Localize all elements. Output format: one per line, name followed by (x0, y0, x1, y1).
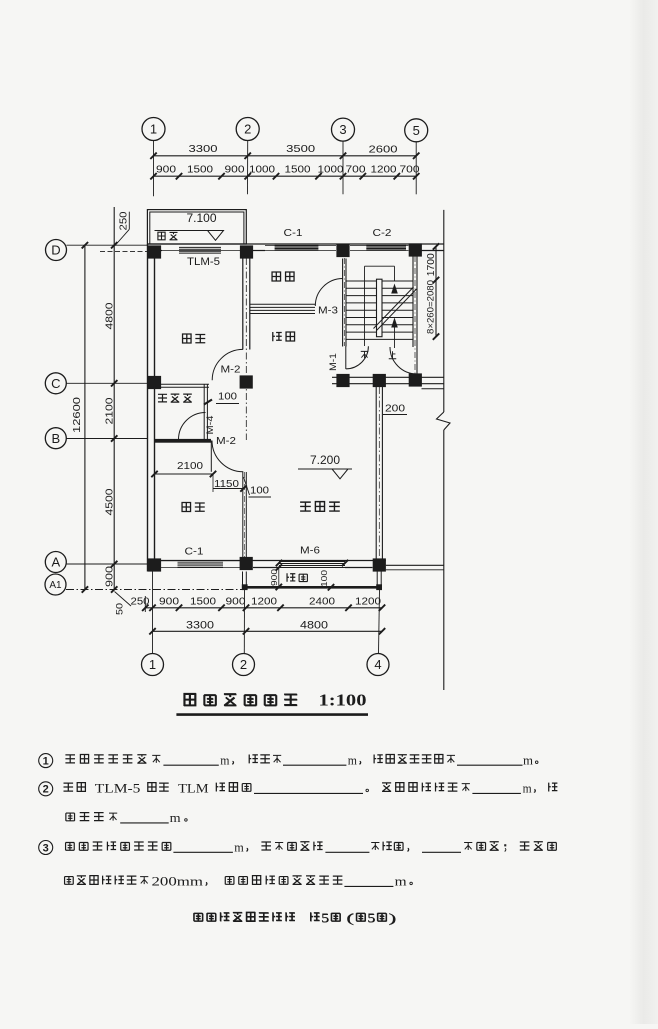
svg-text:100: 100 (250, 486, 269, 497)
svg-text:M-6: M-6 (300, 546, 320, 557)
svg-text:m: m (348, 752, 357, 767)
svg-text:C-1: C-1 (284, 228, 304, 239)
svg-text:700: 700 (346, 164, 367, 175)
svg-text:200: 200 (385, 404, 406, 415)
svg-text:1000: 1000 (249, 164, 276, 175)
svg-text:m: m (395, 874, 407, 889)
svg-text:1:100: 1:100 (319, 691, 367, 710)
svg-text:4500: 4500 (104, 488, 116, 515)
svg-text:1500: 1500 (187, 164, 214, 175)
svg-text:250: 250 (131, 597, 150, 608)
svg-text:1200: 1200 (251, 597, 278, 608)
svg-text:4800: 4800 (104, 302, 116, 329)
svg-text:TLM: TLM (178, 781, 209, 796)
svg-text:3: 3 (43, 842, 49, 854)
svg-text:900: 900 (156, 164, 177, 175)
svg-text:(: ( (347, 911, 355, 926)
svg-text:700: 700 (400, 164, 421, 175)
svg-text:7.100: 7.100 (187, 213, 217, 225)
svg-text:8×260=2080: 8×260=2080 (426, 280, 437, 334)
svg-text:200mm: 200mm (152, 874, 204, 889)
svg-text:1: 1 (149, 657, 156, 672)
svg-text:900: 900 (104, 566, 116, 587)
svg-text:D: D (51, 243, 60, 258)
svg-text:M-2: M-2 (216, 436, 236, 447)
svg-text:2: 2 (43, 784, 49, 796)
svg-text:C-2: C-2 (373, 228, 393, 239)
svg-text:1200: 1200 (355, 597, 382, 608)
svg-text:): ) (389, 911, 397, 926)
svg-text:4800: 4800 (300, 620, 328, 632)
svg-text:1200: 1200 (371, 164, 398, 175)
svg-text:5: 5 (368, 911, 376, 926)
svg-text:1500: 1500 (190, 597, 217, 608)
svg-text:5: 5 (413, 123, 420, 138)
svg-text:12600: 12600 (71, 397, 83, 433)
svg-text:50: 50 (115, 603, 125, 615)
svg-text:m: m (170, 810, 181, 825)
svg-text:M-2: M-2 (221, 365, 241, 376)
svg-text:4: 4 (374, 657, 381, 672)
svg-text:1500: 1500 (285, 164, 312, 175)
svg-text:2100: 2100 (104, 397, 116, 424)
svg-text:1: 1 (43, 756, 49, 768)
svg-text:TLM-5: TLM-5 (95, 781, 141, 796)
svg-text:C-1: C-1 (185, 547, 205, 558)
svg-text:100: 100 (218, 392, 237, 403)
svg-text:m: m (523, 781, 532, 796)
svg-text:2600: 2600 (369, 144, 398, 156)
svg-text:M-3: M-3 (318, 305, 338, 317)
svg-text:5: 5 (321, 911, 329, 926)
svg-text:1: 1 (150, 122, 157, 137)
svg-text:7.200: 7.200 (310, 455, 340, 467)
svg-text:900: 900 (159, 597, 180, 608)
svg-text:1700: 1700 (426, 253, 437, 276)
svg-text:2: 2 (244, 122, 251, 137)
svg-text:900: 900 (269, 569, 279, 586)
svg-text:900: 900 (226, 597, 247, 608)
svg-text:C: C (51, 376, 60, 391)
svg-text:2400: 2400 (309, 597, 336, 608)
svg-text:A1: A1 (49, 580, 62, 591)
svg-text:3500: 3500 (286, 143, 315, 155)
svg-text:M-4: M-4 (205, 416, 216, 435)
svg-text:3300: 3300 (186, 620, 214, 632)
svg-text:250: 250 (119, 211, 130, 230)
svg-text:100: 100 (319, 570, 329, 587)
svg-text:B: B (51, 431, 60, 446)
svg-text:m: m (234, 839, 244, 854)
svg-text:3300: 3300 (189, 143, 218, 155)
svg-text:1000: 1000 (318, 164, 345, 175)
svg-text:2: 2 (240, 657, 247, 672)
svg-text:3: 3 (339, 122, 346, 137)
svg-text:M-1: M-1 (328, 353, 339, 371)
svg-text:2100: 2100 (177, 460, 203, 472)
svg-text:m: m (523, 752, 533, 767)
svg-text:A: A (51, 555, 60, 570)
svg-text:m: m (220, 752, 229, 767)
svg-text:900: 900 (225, 164, 246, 175)
svg-text:TLM-5: TLM-5 (187, 256, 220, 268)
